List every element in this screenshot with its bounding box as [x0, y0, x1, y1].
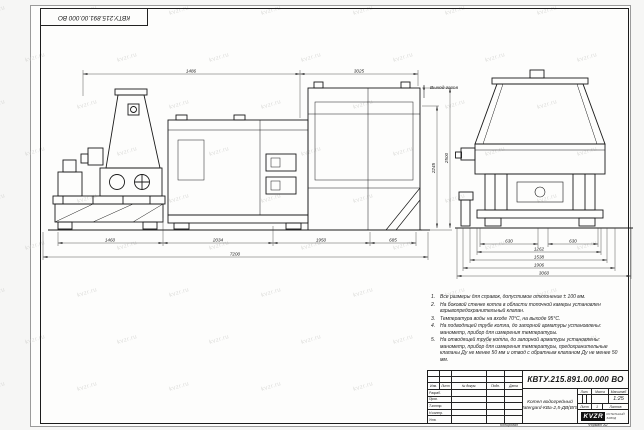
tb-cell [452, 390, 487, 397]
tb-company-name: КОТЕЛЬНЫЙ ЗАВОД [606, 413, 624, 420]
tb-cell [452, 416, 487, 423]
dim-1950: 1950 [316, 238, 327, 243]
dim-2245: 2245 [431, 162, 436, 174]
tb-cell [505, 410, 523, 417]
tb-row-prov: Пров. [428, 397, 452, 404]
tb-row-tkontr: Т.контр. [428, 403, 452, 410]
tb-company-cell: KVZR КОТЕЛЬНЫЙ ЗАВОД [578, 410, 628, 423]
tb-row-razrab: Разраб. [428, 390, 452, 397]
copied-label: Копировал [500, 423, 518, 427]
dim-1460: 1460 [105, 238, 116, 243]
title-block: Изм. Лист № докум. Подп. Дата Разраб. Пр… [427, 370, 629, 424]
note-item: 5. На отводящей трубе котла, до запорной… [431, 337, 627, 363]
tb-col-list: Лист [440, 383, 452, 390]
watermark-text: kvzr.ru [0, 381, 6, 393]
note-item: 2. На боковой стенке котла в области топ… [431, 302, 627, 315]
watermark-text: kvzr.ru [0, 5, 6, 17]
dim-7200: 7200 [230, 252, 241, 257]
tb-scale-value: 1:25 [609, 395, 628, 404]
drawing-sheet: kvzr.rukvzr.rukvzr.rukvzr.rukvzr.rukvzr.… [0, 0, 644, 430]
dim-685: 685 [389, 238, 397, 243]
front-dimension-lines [43, 70, 452, 260]
dim-3025: 3025 [354, 69, 365, 74]
tb-cell [452, 397, 487, 404]
kvzr-logo: KVZR [581, 412, 605, 421]
boiler-unit [168, 115, 308, 229]
tb-cell [452, 403, 487, 410]
tb-cell [487, 403, 505, 410]
gas-outlet: Выход газов [424, 85, 458, 98]
tb-row-nkontr: Н.контр. [428, 410, 452, 417]
burner-unit [53, 89, 165, 229]
dim-1538: 1538 [534, 255, 545, 260]
watermark-text: kvzr.ru [0, 99, 6, 111]
dim-1486: 1486 [186, 69, 197, 74]
dim-1262: 1262 [534, 247, 545, 252]
watermark-text: kvzr.ru [0, 287, 6, 299]
side-view: 630 630 1262 1538 1906 3060 [455, 58, 635, 288]
tb-cell [487, 397, 505, 404]
notes-list: 1. Все размеры для справок, допустимое о… [431, 294, 627, 364]
note-item: 1. Все размеры для справок, допустимое о… [431, 294, 627, 301]
note-item: 4. На подводящей трубе котла, до запорно… [431, 323, 627, 336]
dim-2500: 2500 [444, 152, 449, 164]
format-label: Формат А2 [588, 423, 608, 427]
economizer-unit [308, 82, 420, 230]
dim-1906: 1906 [534, 263, 545, 268]
dim-630-right: 630 [569, 239, 577, 244]
tb-col-podp: Подп. [487, 383, 505, 390]
corner-stamp-number: КВТУ.215.891.00.000 ВО [58, 14, 130, 21]
tb-cell [592, 395, 609, 404]
tb-cell [505, 397, 523, 404]
corner-stamp: КВТУ.215.891.00.000 ВО [40, 8, 148, 26]
tb-product-name: Котел водогрейный Watergard-КВа-2,5-ДВ(В… [523, 389, 578, 423]
watermark-text: kvzr.ru [0, 193, 6, 205]
dim-3060: 3060 [539, 271, 550, 276]
tb-cell [505, 403, 523, 410]
note-item: 3. Температура воды на входе 70°С, на вы… [431, 316, 627, 323]
tb-doc-number: КВТУ.215.891.00.000 ВО [523, 371, 628, 389]
boiler-side-body [456, 70, 606, 226]
front-view: Выход газов 1486 3025 1460 2034 1950 685 [38, 58, 458, 273]
tb-col-doc: № докум. [452, 383, 487, 390]
tb-cell [487, 390, 505, 397]
dim-2034: 2034 [212, 238, 224, 243]
tb-cell [505, 390, 523, 397]
tb-cell [452, 410, 487, 417]
tb-cell [487, 410, 505, 417]
tb-col-data: Дата [505, 383, 523, 390]
tb-col-izm: Изм. [428, 383, 440, 390]
tb-row-utv: Утв. [428, 416, 452, 423]
dim-630-left: 630 [505, 239, 513, 244]
